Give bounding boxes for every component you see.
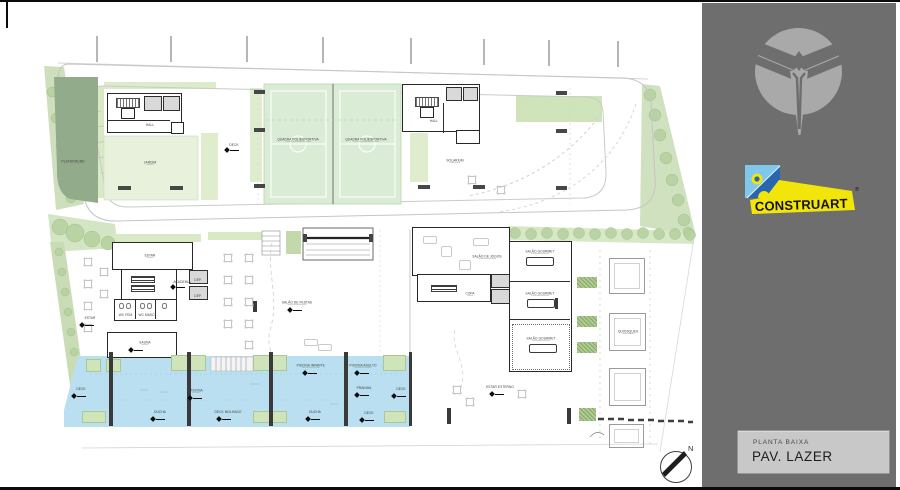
column (409, 352, 412, 426)
plan-label-court-2: QUADRA POLIESPORTIVA (345, 138, 386, 142)
wc-fixture (126, 303, 131, 309)
table-set (245, 254, 253, 262)
kiosk-pergola (609, 368, 646, 406)
plan-label-copa: COPA (465, 292, 474, 296)
pole-icon (410, 38, 412, 64)
table-set (518, 390, 526, 398)
pole-icon (322, 37, 324, 63)
pole-icon (548, 40, 550, 66)
plan-label-dep-1: DEP. (194, 278, 201, 281)
plan-label-deck-left: DECK (76, 387, 85, 390)
wc-room (491, 274, 510, 288)
plan-label-prainha: PRAINHA (357, 386, 372, 389)
plan-label-piscina: PISCINA (189, 389, 202, 393)
plan-label-wc-fem: WC FEM. (119, 313, 133, 316)
bench (170, 186, 183, 190)
hedge (579, 408, 596, 421)
planter (82, 411, 106, 423)
plan-label-ducha-1: DUCHA (154, 410, 166, 413)
kiosk-pergola (609, 258, 645, 294)
table-set (466, 398, 474, 406)
plan-label-quiosques: QUIOSQUES (618, 330, 638, 334)
north-label: N (688, 444, 693, 453)
partition (108, 120, 170, 121)
brand-name: CONSTRUART (755, 196, 848, 214)
table-set (245, 276, 253, 284)
builder-brand-logo: CONSTRUART ® (738, 160, 864, 224)
sofa (423, 236, 437, 244)
counter (431, 285, 457, 292)
game-table (441, 246, 452, 257)
plan-label-estar-externo: ESTAR EXTERNO (486, 385, 514, 388)
playground-area (54, 77, 98, 203)
service-room (446, 87, 462, 101)
service-room (163, 96, 180, 111)
pole-icon (617, 41, 619, 67)
titleblock-subtitle: PLANTA BAIXA (753, 439, 809, 446)
plan-label-ducha-2: DUCHA (309, 410, 321, 413)
table-set (468, 176, 476, 184)
table-set (224, 298, 232, 306)
service-room (144, 96, 162, 111)
hedge (577, 342, 597, 353)
titleblock-title: PAV. LAZER (752, 449, 833, 464)
lounger (304, 339, 318, 346)
tower-core-b-annex (456, 130, 480, 144)
partition (135, 300, 136, 319)
wc-fixture (140, 303, 145, 309)
plan-label-deck-upper: DECK (229, 143, 238, 146)
table-set (84, 302, 92, 310)
table-set (100, 268, 108, 276)
plan-label-piscina-adulto: PISCINA ADULTO (349, 364, 376, 368)
elevator-shaft (121, 108, 135, 119)
pantry-room (417, 274, 491, 302)
partition (510, 281, 570, 282)
covered-terrace (512, 324, 570, 370)
bench (418, 185, 430, 189)
plan-label-gourmet-2: SALÃO GOURMET (526, 292, 555, 296)
pole-icon (96, 36, 98, 62)
dining-table (526, 257, 554, 266)
partition (443, 103, 444, 133)
table-set (224, 276, 232, 284)
storage-room (189, 286, 208, 300)
kiosk-pergola (609, 424, 644, 448)
title-sidebar: CONSTRUART ® PLANTA BAIXA PAV. LAZER (702, 3, 896, 487)
wc-fixture (119, 303, 124, 309)
column (344, 352, 348, 426)
table-set (84, 258, 92, 266)
pole-icon (483, 39, 485, 65)
planter (383, 355, 406, 371)
registered-mark: ® (855, 186, 859, 193)
plan-label-hall-b: HALL (430, 119, 438, 122)
plan-label-estar-left: ESTAR (85, 316, 96, 319)
plan-label-wc-masc: WC MASC. (139, 313, 156, 316)
plan-label-salao-jogos: SALÃO DE JOGOS (472, 255, 501, 259)
table-set (224, 320, 232, 328)
elevator-shaft (420, 107, 434, 118)
partition (510, 319, 570, 320)
hedge (577, 277, 597, 288)
plan-label-hall-a: HALL (146, 123, 154, 126)
pole-icon (170, 36, 172, 62)
plan-label-piscina-infantil: PISCINA INFANTIL (297, 364, 326, 368)
sauna-room (107, 332, 177, 358)
garden-lawn (104, 136, 198, 200)
drawing-titleblock: PLANTA BAIXA PAV. LAZER (738, 431, 889, 473)
column (447, 408, 451, 424)
bench (254, 90, 265, 94)
plan-label-court-1: QUADRA POLIESPORTIVA (277, 138, 318, 142)
gym-room (121, 269, 177, 300)
table-set (100, 290, 108, 298)
game-table (459, 260, 471, 270)
column (567, 408, 571, 424)
table-set (245, 341, 253, 349)
table-set (453, 386, 461, 394)
column (253, 301, 257, 312)
gourmet-hall-block (509, 241, 572, 372)
pole-icon (246, 36, 248, 62)
column (269, 352, 273, 426)
wc-fixture (147, 303, 152, 309)
plan-label-solarium: SOLARIUM (446, 159, 463, 163)
planter (86, 359, 101, 372)
plan-label-estar: ESTAR (145, 254, 156, 258)
plan-label-deck-3: DECK (364, 411, 373, 414)
gym-equipment (131, 285, 155, 292)
table-set (224, 254, 232, 262)
column (109, 352, 113, 426)
stair-hatch (415, 97, 439, 107)
wc-fixture (162, 303, 167, 309)
table-set (245, 320, 253, 328)
plan-label-salao-festas: SALÃO DE FESTAS (282, 301, 312, 305)
lounger (318, 344, 332, 351)
storage-room (189, 270, 208, 284)
sofa (473, 238, 489, 246)
plan-label-playground: PLAYGROUND (62, 160, 85, 164)
table-set (497, 186, 505, 194)
games-room (412, 227, 510, 276)
plan-label-academia: ACADEMIA (173, 280, 190, 283)
table-set (245, 298, 253, 306)
plan-label-gourmet-3: SALÃO GOURMET (527, 337, 556, 341)
builder-emblem-icon (744, 17, 854, 139)
bench (556, 186, 567, 190)
plan-label-deck-molhado: DECK MOLHADO (215, 410, 242, 413)
north-compass-icon (661, 451, 692, 483)
bench (118, 186, 131, 190)
table-set (84, 280, 92, 288)
plan-label-deck-right: DECK (396, 387, 405, 390)
plan-label-dep-2: DEP. (194, 294, 201, 297)
bench (556, 91, 567, 95)
plan-label-garden: JARDIM (144, 161, 156, 165)
presentation-slide: PLAYGROUND JARDIM QUADRA POLIESPORTIVA Q… (0, 0, 900, 490)
service-room (463, 87, 478, 101)
plan-label-sauna: SAUNA (139, 341, 150, 345)
bench (473, 185, 485, 189)
sports-courts (264, 84, 401, 204)
gym-equipment (131, 276, 155, 283)
bench (254, 128, 265, 132)
hedge (577, 316, 597, 327)
wc-block (114, 299, 177, 321)
storage-room (491, 289, 510, 304)
plan-label-gourmet-1: SALÃO GOURMET (526, 250, 555, 254)
tower-core-b (402, 84, 480, 132)
planter (384, 411, 406, 423)
column (555, 298, 558, 309)
stair-hatch (116, 98, 140, 108)
tower-core-a-annex (171, 122, 184, 134)
bench (556, 129, 567, 133)
dining-table (527, 299, 555, 308)
bench (254, 184, 265, 188)
